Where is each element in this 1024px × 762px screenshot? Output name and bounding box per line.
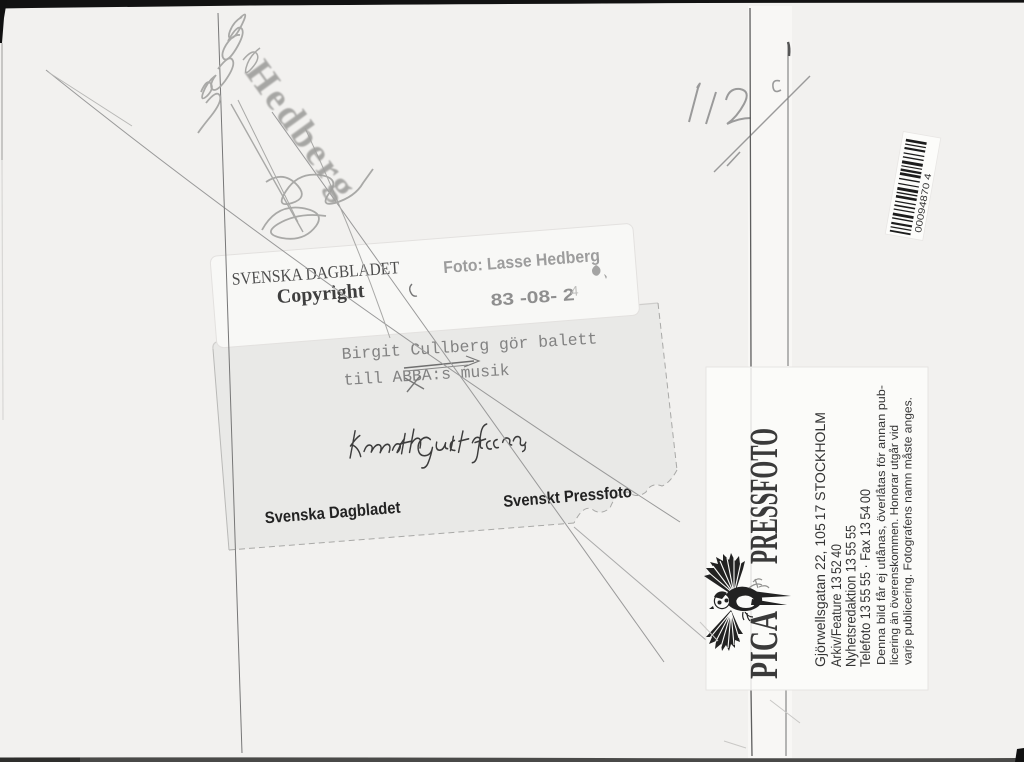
svg-text:Telefoto 13 55 55 · Fax 13 54: Telefoto 13 55 55 · Fax 13 54 00 bbox=[857, 489, 873, 667]
svg-text:PICA: PICA bbox=[741, 611, 786, 679]
svg-text:Denna bild får ej utlånas, öve: Denna bild får ej utlånas, överlåtas för… bbox=[875, 385, 888, 665]
svg-text:varje publicering. Fotografens: varje publicering. Fotografens namn måst… bbox=[902, 397, 915, 665]
svg-text:Gjörwellsgatan 22, 105 17 STOC: Gjörwellsgatan 22, 105 17 STOCKHOLM bbox=[812, 412, 828, 667]
svg-text:licering än överenskommen. Hon: licering än överenskommen. Honorar utgår… bbox=[888, 425, 901, 665]
svg-text:4: 4 bbox=[570, 282, 579, 299]
svg-text:PRESSFOTO: PRESSFOTO bbox=[741, 428, 786, 564]
